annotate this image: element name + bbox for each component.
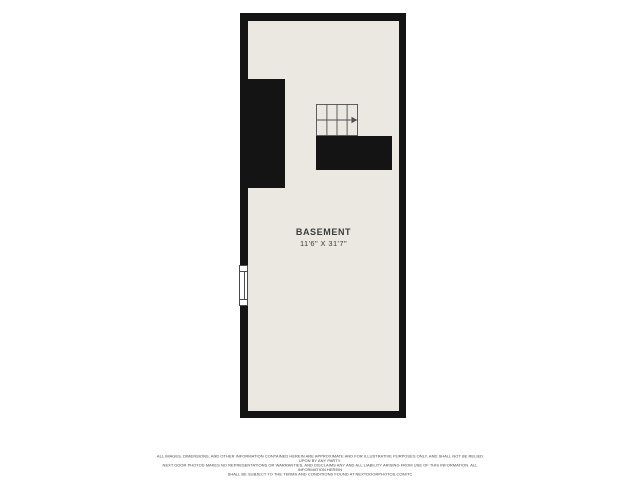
- window-sash-line: [240, 299, 247, 300]
- disclaimer-line: NEXT DOOR PHOTOS MAKES NO REPRESENTATION…: [152, 463, 489, 472]
- room-label: BASEMENT 11'6" X 31'7": [248, 227, 399, 248]
- wall-segment-left-jog: [248, 79, 285, 188]
- staircase-grid: [316, 104, 358, 136]
- staircase: [316, 104, 358, 136]
- room-name: BASEMENT: [248, 227, 399, 238]
- wall-segment-under-stairs: [316, 136, 392, 170]
- stair-direction-arrow-icon: [352, 117, 358, 123]
- disclaimer: ALL IMAGES, DIMENSIONS, AND OTHER INFORM…: [152, 454, 489, 476]
- window-mullion-line: [244, 272, 245, 299]
- room-dimensions: 11'6" X 31'7": [248, 239, 399, 248]
- floor-plan: BASEMENT 11'6" X 31'7": [240, 13, 406, 418]
- disclaimer-line: SHALL BE SUBJECT TO THE TERMS AND CONDIT…: [152, 472, 489, 476]
- disclaimer-line: ALL IMAGES, DIMENSIONS, AND OTHER INFORM…: [152, 454, 489, 463]
- window-icon: [239, 265, 248, 306]
